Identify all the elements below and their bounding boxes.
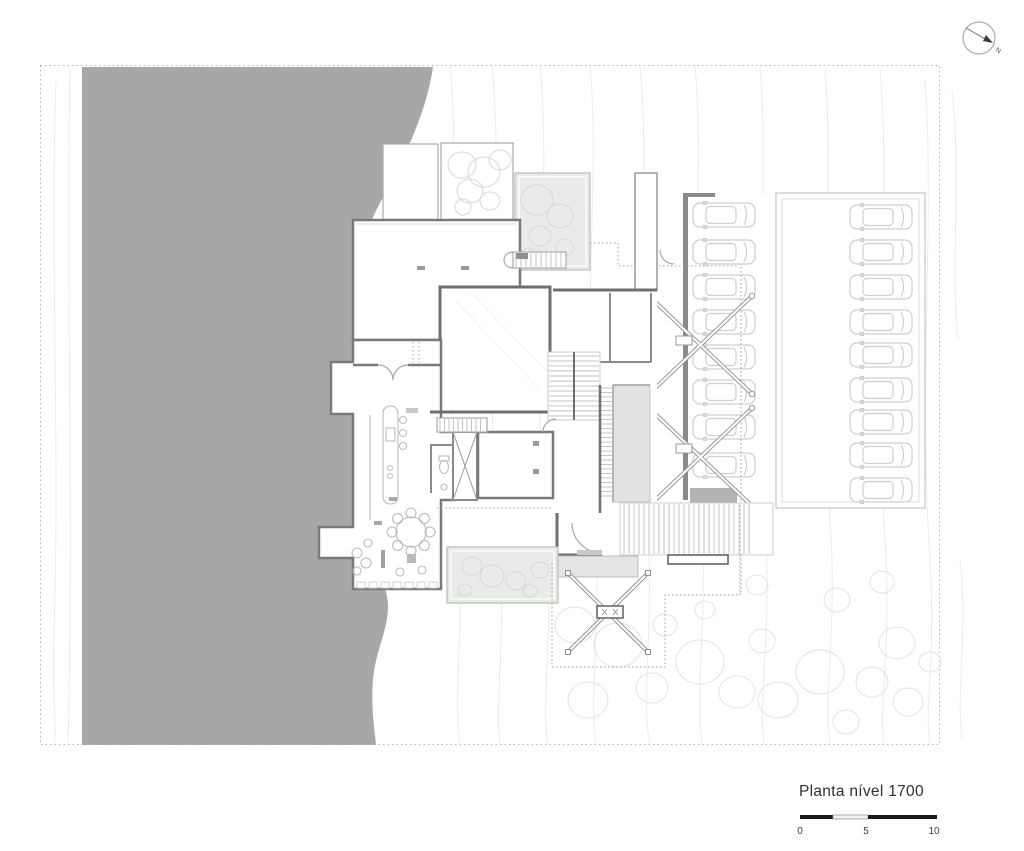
driveway: [688, 194, 776, 509]
stair-top: [504, 252, 566, 268]
room-upper-left: [383, 144, 438, 220]
room-upper-tree-court: [441, 143, 513, 220]
floor-plan-canvas: N Planta nível 1700 0 5 10: [0, 0, 1024, 851]
stair-wide-east: [620, 503, 773, 555]
room-lower-right: [478, 432, 553, 498]
scale-bar: 0 5 10: [797, 815, 940, 837]
bench: [668, 555, 728, 564]
courtyard-garden: [447, 547, 558, 603]
window-band: [357, 582, 437, 588]
retaining-wall: [683, 193, 688, 500]
floor-plan-page: N Planta nível 1700 0 5 10: [0, 0, 1024, 851]
room-master: [440, 287, 550, 412]
door-arc: [660, 250, 674, 264]
ramp-band: [613, 385, 650, 502]
chimney-wall: [635, 173, 657, 290]
parking-step: [690, 488, 737, 503]
compass: N: [963, 22, 1002, 55]
elevator-shaft: [453, 432, 477, 500]
plan-title: Planta nível 1700: [799, 783, 924, 800]
stair-interior: [548, 352, 600, 420]
stair-small: [437, 418, 487, 432]
scale-label-5: 5: [863, 826, 869, 837]
scale-label-0: 0: [797, 826, 803, 837]
compass-north-label: N: [994, 47, 1002, 56]
scale-label-10: 10: [928, 826, 940, 837]
